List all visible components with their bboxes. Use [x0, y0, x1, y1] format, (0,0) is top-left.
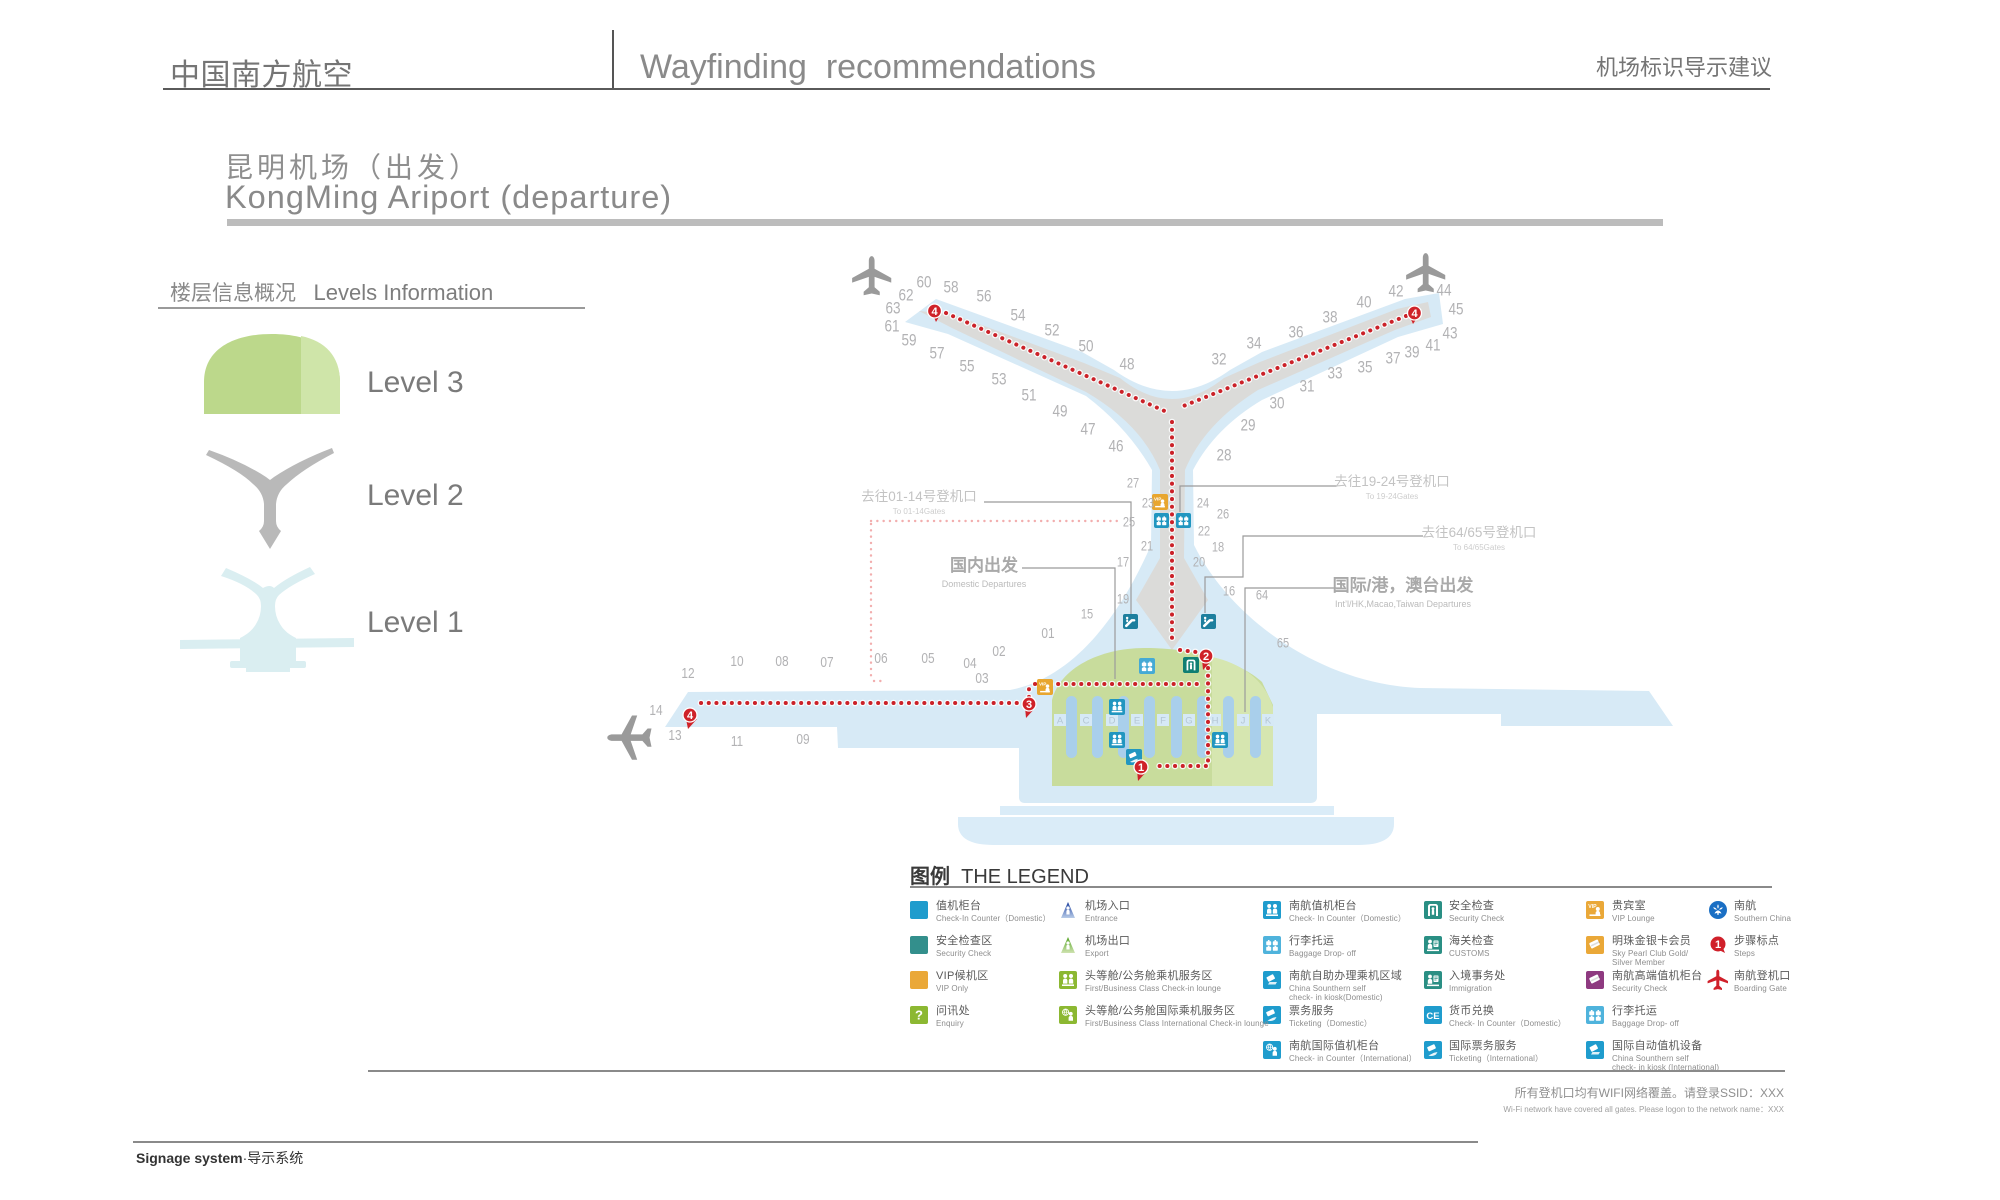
svg-text:4: 4 [931, 306, 938, 318]
svg-text:C: C [1083, 716, 1090, 727]
svg-text:K: K [1265, 716, 1272, 727]
svg-text:1: 1 [1715, 939, 1721, 951]
svg-text:A: A [1057, 716, 1064, 727]
svg-text:4: 4 [687, 710, 694, 722]
svg-text:D: D [1109, 716, 1116, 727]
svg-text:3: 3 [1026, 699, 1032, 711]
svg-text:J: J [1241, 716, 1246, 727]
svg-text:2: 2 [1203, 651, 1209, 663]
svg-text:CE: CE [1426, 1011, 1439, 1022]
svg-text:1: 1 [1138, 762, 1144, 774]
svg-text:H: H [1212, 716, 1219, 727]
svg-text:E: E [1134, 716, 1140, 727]
svg-text:?: ? [915, 1008, 923, 1023]
svg-text:F: F [1160, 716, 1166, 727]
svg-text:4: 4 [1411, 308, 1418, 320]
svg-text:G: G [1185, 716, 1192, 727]
